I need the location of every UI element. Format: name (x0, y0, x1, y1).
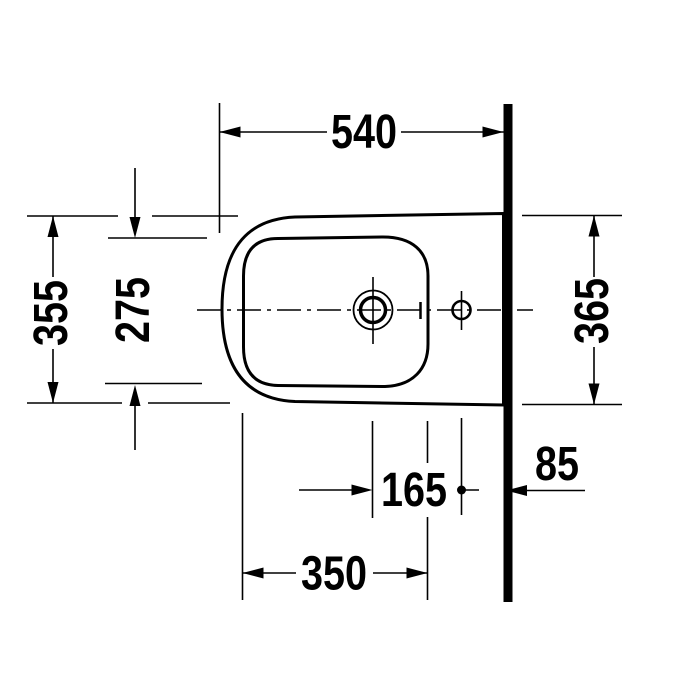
dim-365-arrow-top (589, 216, 600, 237)
dimension-365: 365 (522, 216, 622, 405)
wall-line (504, 104, 513, 602)
dim-365-arrow-bottom (589, 384, 600, 405)
dim-365-label: 365 (566, 278, 619, 344)
dimension-85: 85 (506, 438, 585, 496)
dim-350-arrow-left (243, 568, 264, 579)
dim-350-arrow-right (407, 568, 428, 579)
dimension-275: 275 (105, 168, 207, 450)
dim-355-arrow-bottom (48, 382, 59, 403)
drawing-canvas: 540 355 275 365 (0, 0, 700, 700)
dim-355-label: 355 (25, 280, 78, 346)
dim-355-arrow-top (48, 216, 59, 237)
dim-275-label: 275 (107, 277, 160, 343)
dim-275-arrow-bottom (130, 385, 141, 406)
dim-85-label: 85 (535, 438, 579, 491)
dim-275-arrow-top (130, 217, 141, 238)
dim-540-label: 540 (331, 106, 397, 159)
dim-540-arrow-left (220, 127, 241, 138)
dim-540-arrow-right (483, 127, 504, 138)
bidet-dimension-drawing: 540 355 275 365 (0, 0, 700, 700)
dim-350-label: 350 (301, 548, 367, 601)
dim-165-arrow-left (352, 485, 373, 496)
dim-165-label: 165 (381, 464, 447, 517)
